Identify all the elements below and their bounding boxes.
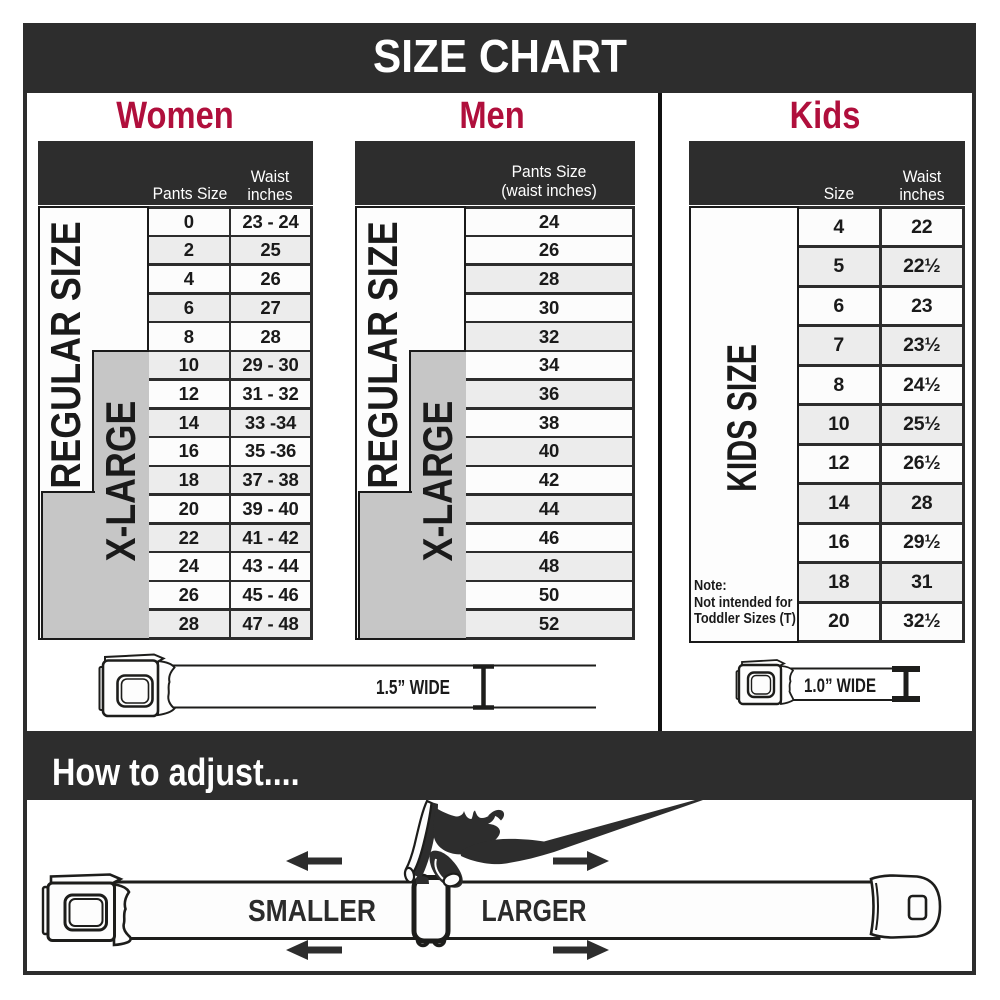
svg-text:1.0” WIDE: 1.0” WIDE: [804, 676, 876, 697]
svg-text:SMALLER: SMALLER: [248, 893, 376, 928]
svg-text:LARGER: LARGER: [482, 893, 587, 928]
svg-text:1.5” WIDE: 1.5” WIDE: [376, 677, 450, 699]
